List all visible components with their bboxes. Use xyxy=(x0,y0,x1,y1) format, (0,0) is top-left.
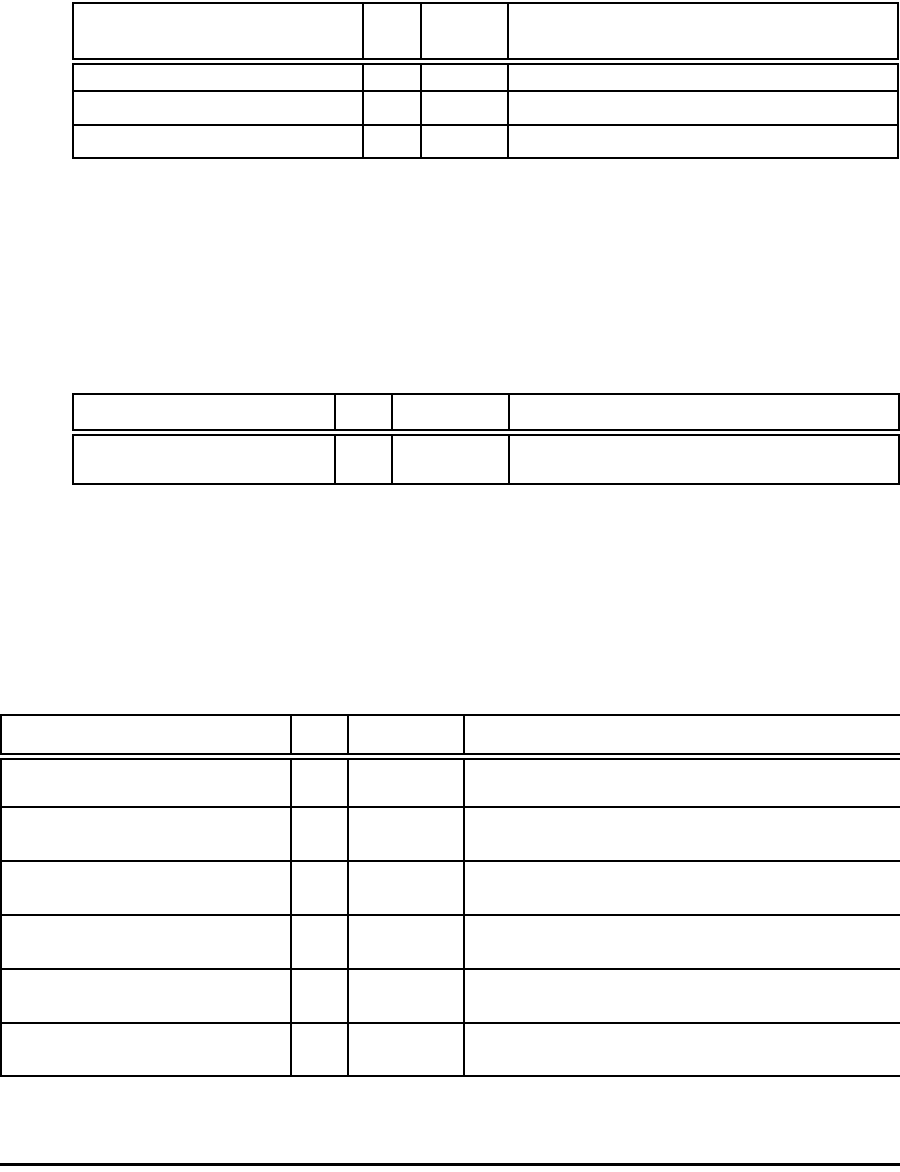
body-cell xyxy=(291,969,348,1023)
table-row xyxy=(1,915,900,969)
body-cell xyxy=(348,969,464,1023)
body-cell xyxy=(73,125,363,158)
header-row xyxy=(73,394,899,432)
bottom-table xyxy=(0,714,900,1077)
body-cell xyxy=(464,807,900,861)
body-cell xyxy=(291,756,348,807)
body-cell xyxy=(508,91,898,125)
document-page: { "colors": { "border": "#000000", "back… xyxy=(0,0,900,1172)
bottom-table-header xyxy=(1,715,900,756)
body-cell xyxy=(291,915,348,969)
middle-table-body xyxy=(73,432,899,484)
header-cell xyxy=(73,394,335,432)
body-cell xyxy=(348,756,464,807)
body-cell xyxy=(509,432,899,484)
body-cell xyxy=(1,807,291,861)
body-cell xyxy=(291,1023,348,1076)
body-cell xyxy=(421,61,508,91)
body-cell xyxy=(421,91,508,125)
footer-rule xyxy=(0,1163,900,1166)
body-cell xyxy=(421,125,508,158)
table-row xyxy=(73,432,899,484)
header-cell xyxy=(464,715,900,756)
body-cell xyxy=(464,915,900,969)
header-cell xyxy=(1,715,291,756)
table-row xyxy=(73,91,898,125)
header-cell xyxy=(509,394,899,432)
body-cell xyxy=(348,807,464,861)
body-cell xyxy=(335,432,392,484)
table-row xyxy=(1,1023,900,1076)
body-cell xyxy=(508,61,898,91)
top-table-body xyxy=(73,61,898,158)
bottom-table-body xyxy=(1,756,900,1076)
body-cell xyxy=(1,861,291,915)
header-cell xyxy=(508,3,898,61)
header-cell xyxy=(348,715,464,756)
body-cell xyxy=(1,756,291,807)
header-cell xyxy=(73,3,363,61)
header-cell xyxy=(363,3,421,61)
body-cell xyxy=(363,61,421,91)
top-table-header xyxy=(73,3,898,61)
table-row xyxy=(1,756,900,807)
body-cell xyxy=(464,1023,900,1076)
body-cell xyxy=(291,807,348,861)
top-table xyxy=(72,2,899,159)
table-row xyxy=(1,969,900,1023)
body-cell xyxy=(464,861,900,915)
header-cell xyxy=(421,3,508,61)
body-cell xyxy=(363,91,421,125)
body-cell xyxy=(1,1023,291,1076)
body-cell xyxy=(1,915,291,969)
header-row xyxy=(73,3,898,61)
body-cell xyxy=(73,91,363,125)
header-cell xyxy=(291,715,348,756)
header-cell xyxy=(392,394,509,432)
middle-table xyxy=(72,393,900,485)
body-cell xyxy=(363,125,421,158)
header-row xyxy=(1,715,900,756)
body-cell xyxy=(392,432,509,484)
body-cell xyxy=(348,1023,464,1076)
body-cell xyxy=(464,969,900,1023)
middle-table-header xyxy=(73,394,899,432)
body-cell xyxy=(291,861,348,915)
body-cell xyxy=(508,125,898,158)
header-cell xyxy=(335,394,392,432)
table-row xyxy=(1,807,900,861)
table-row xyxy=(73,125,898,158)
table-row xyxy=(73,61,898,91)
body-cell xyxy=(73,432,335,484)
body-cell xyxy=(464,756,900,807)
body-cell xyxy=(348,861,464,915)
body-cell xyxy=(348,915,464,969)
body-cell xyxy=(73,61,363,91)
body-cell xyxy=(1,969,291,1023)
table-row xyxy=(1,861,900,915)
